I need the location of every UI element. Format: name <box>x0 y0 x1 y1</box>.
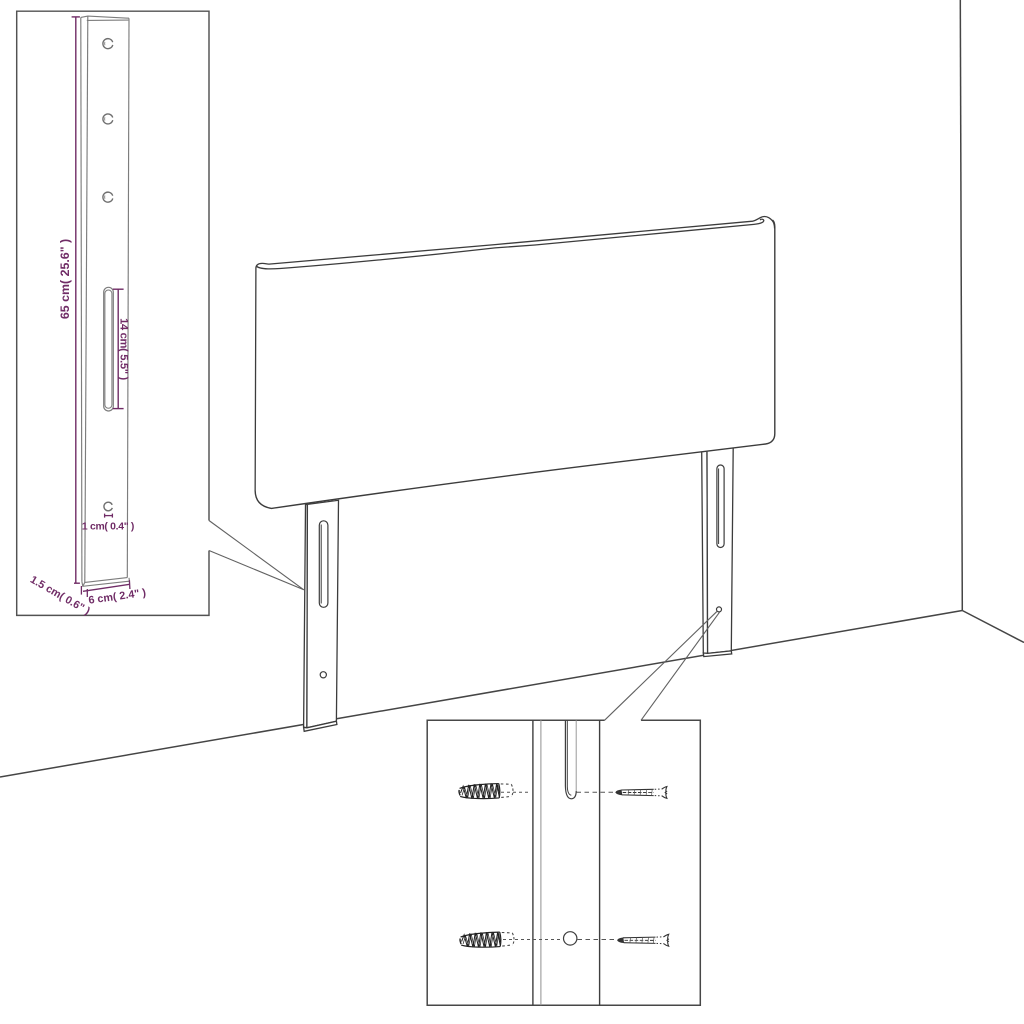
svg-text:65 cm( 25.6" ): 65 cm( 25.6" ) <box>58 239 72 319</box>
svg-text:1 cm( 0.4" ): 1 cm( 0.4" ) <box>82 522 134 533</box>
svg-text:14 cm( 5.5" ): 14 cm( 5.5" ) <box>117 318 129 380</box>
